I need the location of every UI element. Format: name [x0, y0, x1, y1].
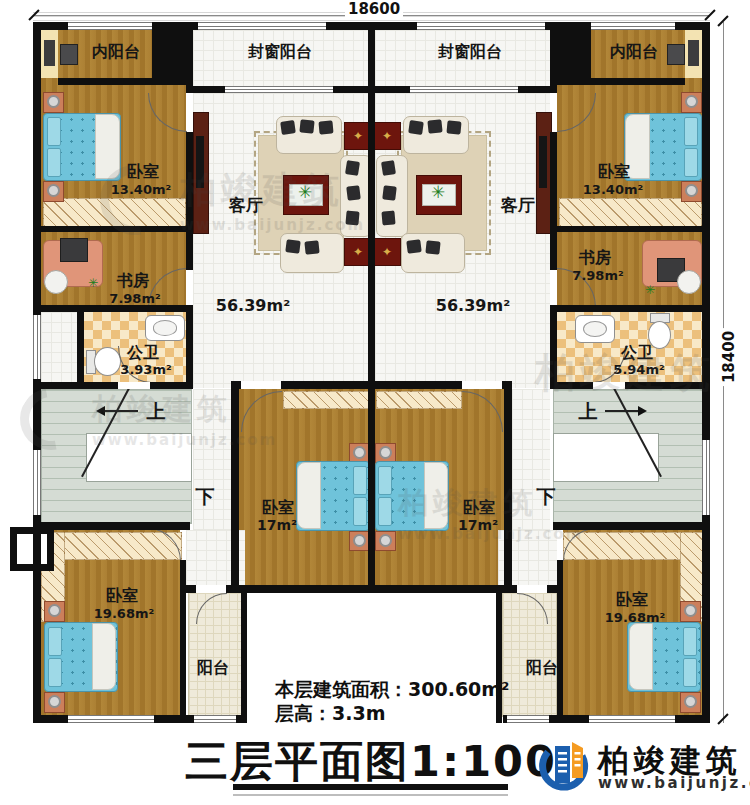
wall-segment: [550, 308, 557, 389]
wall-segment: [550, 22, 591, 80]
label-bedroom-mid-right-area: 17m²: [458, 517, 498, 533]
plant-icon: ✳: [298, 182, 312, 202]
door-gap: [593, 382, 625, 389]
pillow: [684, 117, 698, 146]
window: [507, 715, 549, 723]
bath-shaft-left: [41, 312, 77, 382]
label-bedroom-bottom-left-area: 19.68m²: [94, 606, 154, 621]
label-stairs-down-right: 下: [537, 484, 556, 510]
wall-segment: [231, 585, 512, 593]
label-bath-right: 公卫: [621, 343, 653, 364]
label-living-left: 客厅: [229, 194, 263, 217]
cushion: [381, 210, 395, 225]
label-living-right-area: 56.39m²: [436, 296, 510, 315]
pillow: [378, 466, 392, 495]
tv-icon: [539, 136, 547, 188]
label-study-right: 书房: [579, 248, 611, 269]
label-study-right-area: 7.98m²: [572, 268, 623, 283]
label-bedroom-top-left: 卧室: [127, 162, 159, 183]
wall-segment: [186, 308, 193, 389]
label-bedroom-top-left-area: 13.40m²: [111, 182, 171, 197]
star-icon: ✦: [353, 130, 363, 142]
cushion: [425, 240, 440, 254]
wall-segment: [550, 226, 710, 232]
window: [68, 22, 152, 30]
bed-sheet: [95, 114, 120, 179]
pillow: [48, 658, 62, 687]
cushion: [304, 240, 319, 254]
cabinet: [688, 40, 699, 66]
computer: [60, 238, 88, 262]
cushion: [408, 120, 424, 135]
label-living-right: 客厅: [501, 194, 535, 217]
window: [589, 715, 675, 723]
label-bedroom-bottom-right: 卧室: [616, 590, 648, 611]
stair-arrow-head: [96, 406, 105, 416]
dimension-right-label: 18400: [720, 328, 738, 386]
wall-segment: [33, 226, 193, 232]
toilet: [94, 347, 121, 376]
dimension-top-label: 18600: [345, 0, 403, 18]
cushion: [406, 239, 421, 254]
cushion: [345, 160, 360, 176]
closet: [283, 391, 369, 409]
wall-segment: [550, 80, 557, 92]
window: [702, 440, 710, 515]
label-bedroom-mid-left: 卧室: [262, 498, 294, 519]
wall-segment: [186, 80, 193, 92]
label-bedroom-bottom-right-area: 19.68m²: [605, 610, 665, 625]
nightstand: [375, 531, 396, 551]
closet: [559, 198, 702, 227]
window: [591, 22, 675, 30]
nightstand: [43, 92, 64, 113]
wall-segment: [77, 312, 84, 382]
nightstand: [44, 601, 65, 622]
company-logo-site: www.baijunjz.com: [598, 774, 750, 792]
wall-segment: [231, 385, 239, 593]
label-stairs-up-right: 上: [579, 399, 598, 425]
bed-sheet: [629, 623, 653, 690]
building-logo-icon: [538, 736, 592, 794]
floor-plan: 18600 18400: [0, 0, 750, 805]
cushion: [381, 160, 396, 176]
cushion: [382, 185, 397, 200]
wall-segment: [368, 22, 375, 593]
star-icon: ✦: [353, 246, 363, 258]
label-bedroom-top-right-area: 13.40m²: [583, 182, 643, 197]
nightstand: [349, 531, 370, 551]
wall-segment: [180, 560, 186, 715]
pillow: [683, 627, 697, 656]
nightstand: [43, 181, 64, 202]
door-gap: [241, 381, 281, 389]
plant-icon: ✳: [645, 283, 655, 297]
footer-height-line: 层高：3.3m: [275, 701, 385, 727]
label-bath-left: 公卫: [127, 343, 159, 364]
cabinet: [60, 44, 78, 65]
pillow: [683, 658, 697, 687]
label-bedroom-mid-right: 卧室: [463, 498, 495, 519]
label-living-left-area: 56.39m²: [216, 296, 290, 315]
wall-segment: [550, 78, 685, 85]
cushion: [446, 120, 461, 134]
wall-segment: [550, 382, 710, 389]
label-window-balcony-left: 封窗阳台: [248, 42, 312, 63]
star-icon: ✦: [382, 130, 392, 142]
label-balcony-left: 阳台: [197, 658, 229, 679]
label-inner-balcony-left: 内阳台: [92, 42, 140, 63]
cushion: [318, 120, 333, 134]
nightstand: [375, 443, 396, 463]
stair-arrow: [605, 410, 639, 412]
nightstand: [680, 601, 701, 622]
wall-segment: [550, 305, 710, 312]
pillow: [353, 497, 367, 526]
pillow: [684, 148, 698, 177]
sink: [145, 315, 185, 341]
wall-segment: [550, 132, 557, 270]
nightstand: [349, 443, 370, 463]
cushion: [345, 210, 359, 225]
wall-segment: [241, 585, 247, 723]
pillow: [47, 117, 61, 146]
company-logo-icon: [538, 736, 592, 794]
wall-segment: [557, 560, 563, 715]
bed-sheet: [424, 462, 448, 529]
label-bath-left-area: 3.93m²: [120, 362, 171, 377]
stair-arrow: [104, 410, 138, 412]
cushion: [346, 185, 361, 200]
window: [194, 715, 236, 723]
label-bedroom-top-right: 卧室: [598, 162, 630, 183]
cushion: [427, 119, 442, 133]
wall-segment: [33, 305, 193, 312]
wall-segment: [33, 522, 190, 530]
window: [33, 450, 41, 515]
window: [68, 715, 154, 723]
door-gap: [517, 585, 547, 593]
closet: [43, 198, 186, 227]
page-title: 三层平面图1:100: [185, 733, 557, 791]
cabinet: [44, 40, 55, 66]
extension-line: [33, 20, 710, 21]
label-bath-right-area: 5.94m²: [613, 362, 664, 377]
window: [33, 315, 41, 379]
wall-segment: [504, 385, 512, 593]
pillow: [48, 627, 62, 656]
wall-segment: [58, 78, 193, 85]
window: [417, 22, 545, 30]
wall-segment: [33, 382, 193, 389]
stair-arrow-head: [638, 406, 647, 416]
door-gap: [196, 585, 226, 593]
wall-segment: [553, 522, 710, 530]
star-icon: ✦: [382, 246, 392, 258]
cushion: [299, 119, 314, 133]
label-bedroom-bottom-left: 卧室: [106, 586, 138, 607]
chair: [44, 270, 68, 294]
window: [410, 86, 518, 93]
nightstand: [681, 92, 702, 113]
chair: [677, 270, 701, 294]
pillow: [378, 497, 392, 526]
cushion: [280, 120, 296, 135]
label-stairs-down-left: 下: [196, 484, 215, 510]
plant-icon: ✳: [88, 276, 98, 290]
title-underline: [233, 784, 508, 790]
label-study-left-area: 7.98m²: [109, 291, 160, 306]
label-bedroom-mid-left-area: 17m²: [257, 517, 297, 533]
door-gap: [462, 381, 502, 389]
sink: [575, 315, 615, 343]
label-balcony-right: 阳台: [526, 658, 558, 679]
plant-icon: ✳: [431, 182, 445, 202]
title-underline-thin: [233, 794, 508, 796]
tv-icon: [196, 136, 204, 188]
bed-sheet: [92, 623, 116, 690]
wall-segment: [186, 132, 193, 270]
shaft-box: [10, 527, 54, 571]
label-window-balcony-right: 封窗阳台: [438, 42, 502, 63]
closet: [376, 391, 462, 409]
accent-table: ✦: [373, 238, 401, 266]
window: [198, 22, 326, 30]
window: [225, 86, 333, 93]
wall-segment: [152, 22, 193, 80]
footer-area-line: 本层建筑面积：300.60m²: [275, 677, 509, 703]
accent-table: ✦: [373, 122, 401, 150]
nightstand: [44, 692, 65, 713]
bed-sheet: [297, 462, 321, 529]
door-gap: [118, 382, 150, 389]
nightstand: [680, 692, 701, 713]
cabinet: [667, 44, 685, 65]
label-inner-balcony-right: 内阳台: [610, 42, 658, 63]
label-study-left: 书房: [117, 271, 149, 292]
wall-segment: [702, 22, 710, 723]
pillow: [47, 148, 61, 177]
nightstand: [681, 181, 702, 202]
pillow: [353, 466, 367, 495]
label-stairs-up-left: 上: [147, 399, 166, 425]
cushion: [285, 239, 300, 254]
